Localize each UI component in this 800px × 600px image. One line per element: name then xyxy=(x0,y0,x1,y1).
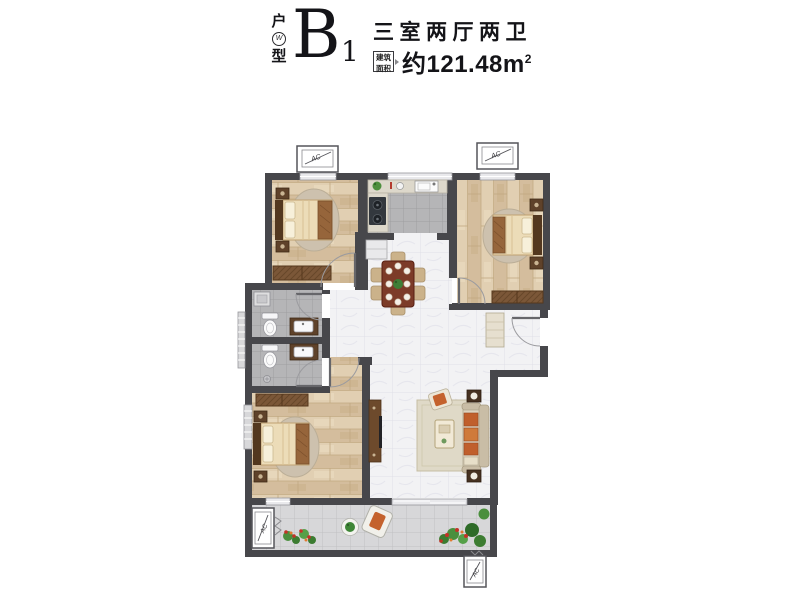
dining-chair xyxy=(413,286,425,300)
toilet2 xyxy=(262,345,278,368)
sofa xyxy=(462,403,489,473)
floorplan-drawing: AC AC AC AC xyxy=(0,0,800,600)
shower-unit xyxy=(254,292,270,306)
kitchen-plant xyxy=(373,182,382,191)
master-wardrobe xyxy=(492,291,543,303)
kitchen-knife xyxy=(390,182,392,189)
ac-unit-balcony-left: AC xyxy=(252,508,274,548)
toilet xyxy=(262,313,278,336)
vanity-sink xyxy=(290,318,318,335)
shoe-cabinet xyxy=(486,313,504,347)
balcony-sliding-door xyxy=(392,499,467,505)
floor-drain-icon xyxy=(264,376,271,383)
dining-chair xyxy=(371,268,383,282)
coffee-table xyxy=(435,420,454,448)
balcony-plant-table xyxy=(342,519,359,536)
dining-chair xyxy=(413,268,425,282)
window-bedroom3-balcony xyxy=(266,498,290,505)
bedroom3-wardrobe xyxy=(256,394,308,406)
ac-unit-top-right: AC xyxy=(477,143,518,169)
ac-unit-top-left: AC xyxy=(297,146,338,172)
kitchen-stove xyxy=(369,197,386,225)
vanity-sink2 xyxy=(290,344,318,360)
bedroom3-bed xyxy=(253,423,309,465)
side-table xyxy=(467,390,481,402)
master-bed xyxy=(493,215,542,255)
refrigerator xyxy=(366,240,387,259)
floorplan-page: 户 W 型 B 1 三室两厅两卫 建筑 面积 约121.48m2 xyxy=(0,0,800,600)
tv xyxy=(379,416,382,448)
kitchen-sink xyxy=(415,181,438,192)
window-bedroom3-side xyxy=(244,405,252,449)
window-top-left xyxy=(300,173,336,180)
foyer-furniture xyxy=(486,313,504,347)
window-bathroom-side xyxy=(238,312,245,368)
dining-chair xyxy=(371,286,383,300)
window-top-right xyxy=(480,173,515,180)
window-kitchen xyxy=(388,173,452,180)
bedroom1-furniture xyxy=(273,188,339,280)
tv-stand xyxy=(369,400,382,462)
side-table2 xyxy=(467,470,481,482)
kitchen-dish xyxy=(397,183,404,190)
dining-centerpiece-plant xyxy=(393,279,403,289)
bedroom1-bed xyxy=(275,200,332,240)
ac-unit-bottom-right: AC xyxy=(464,551,486,587)
bedroom3-nook-floor xyxy=(330,357,362,393)
